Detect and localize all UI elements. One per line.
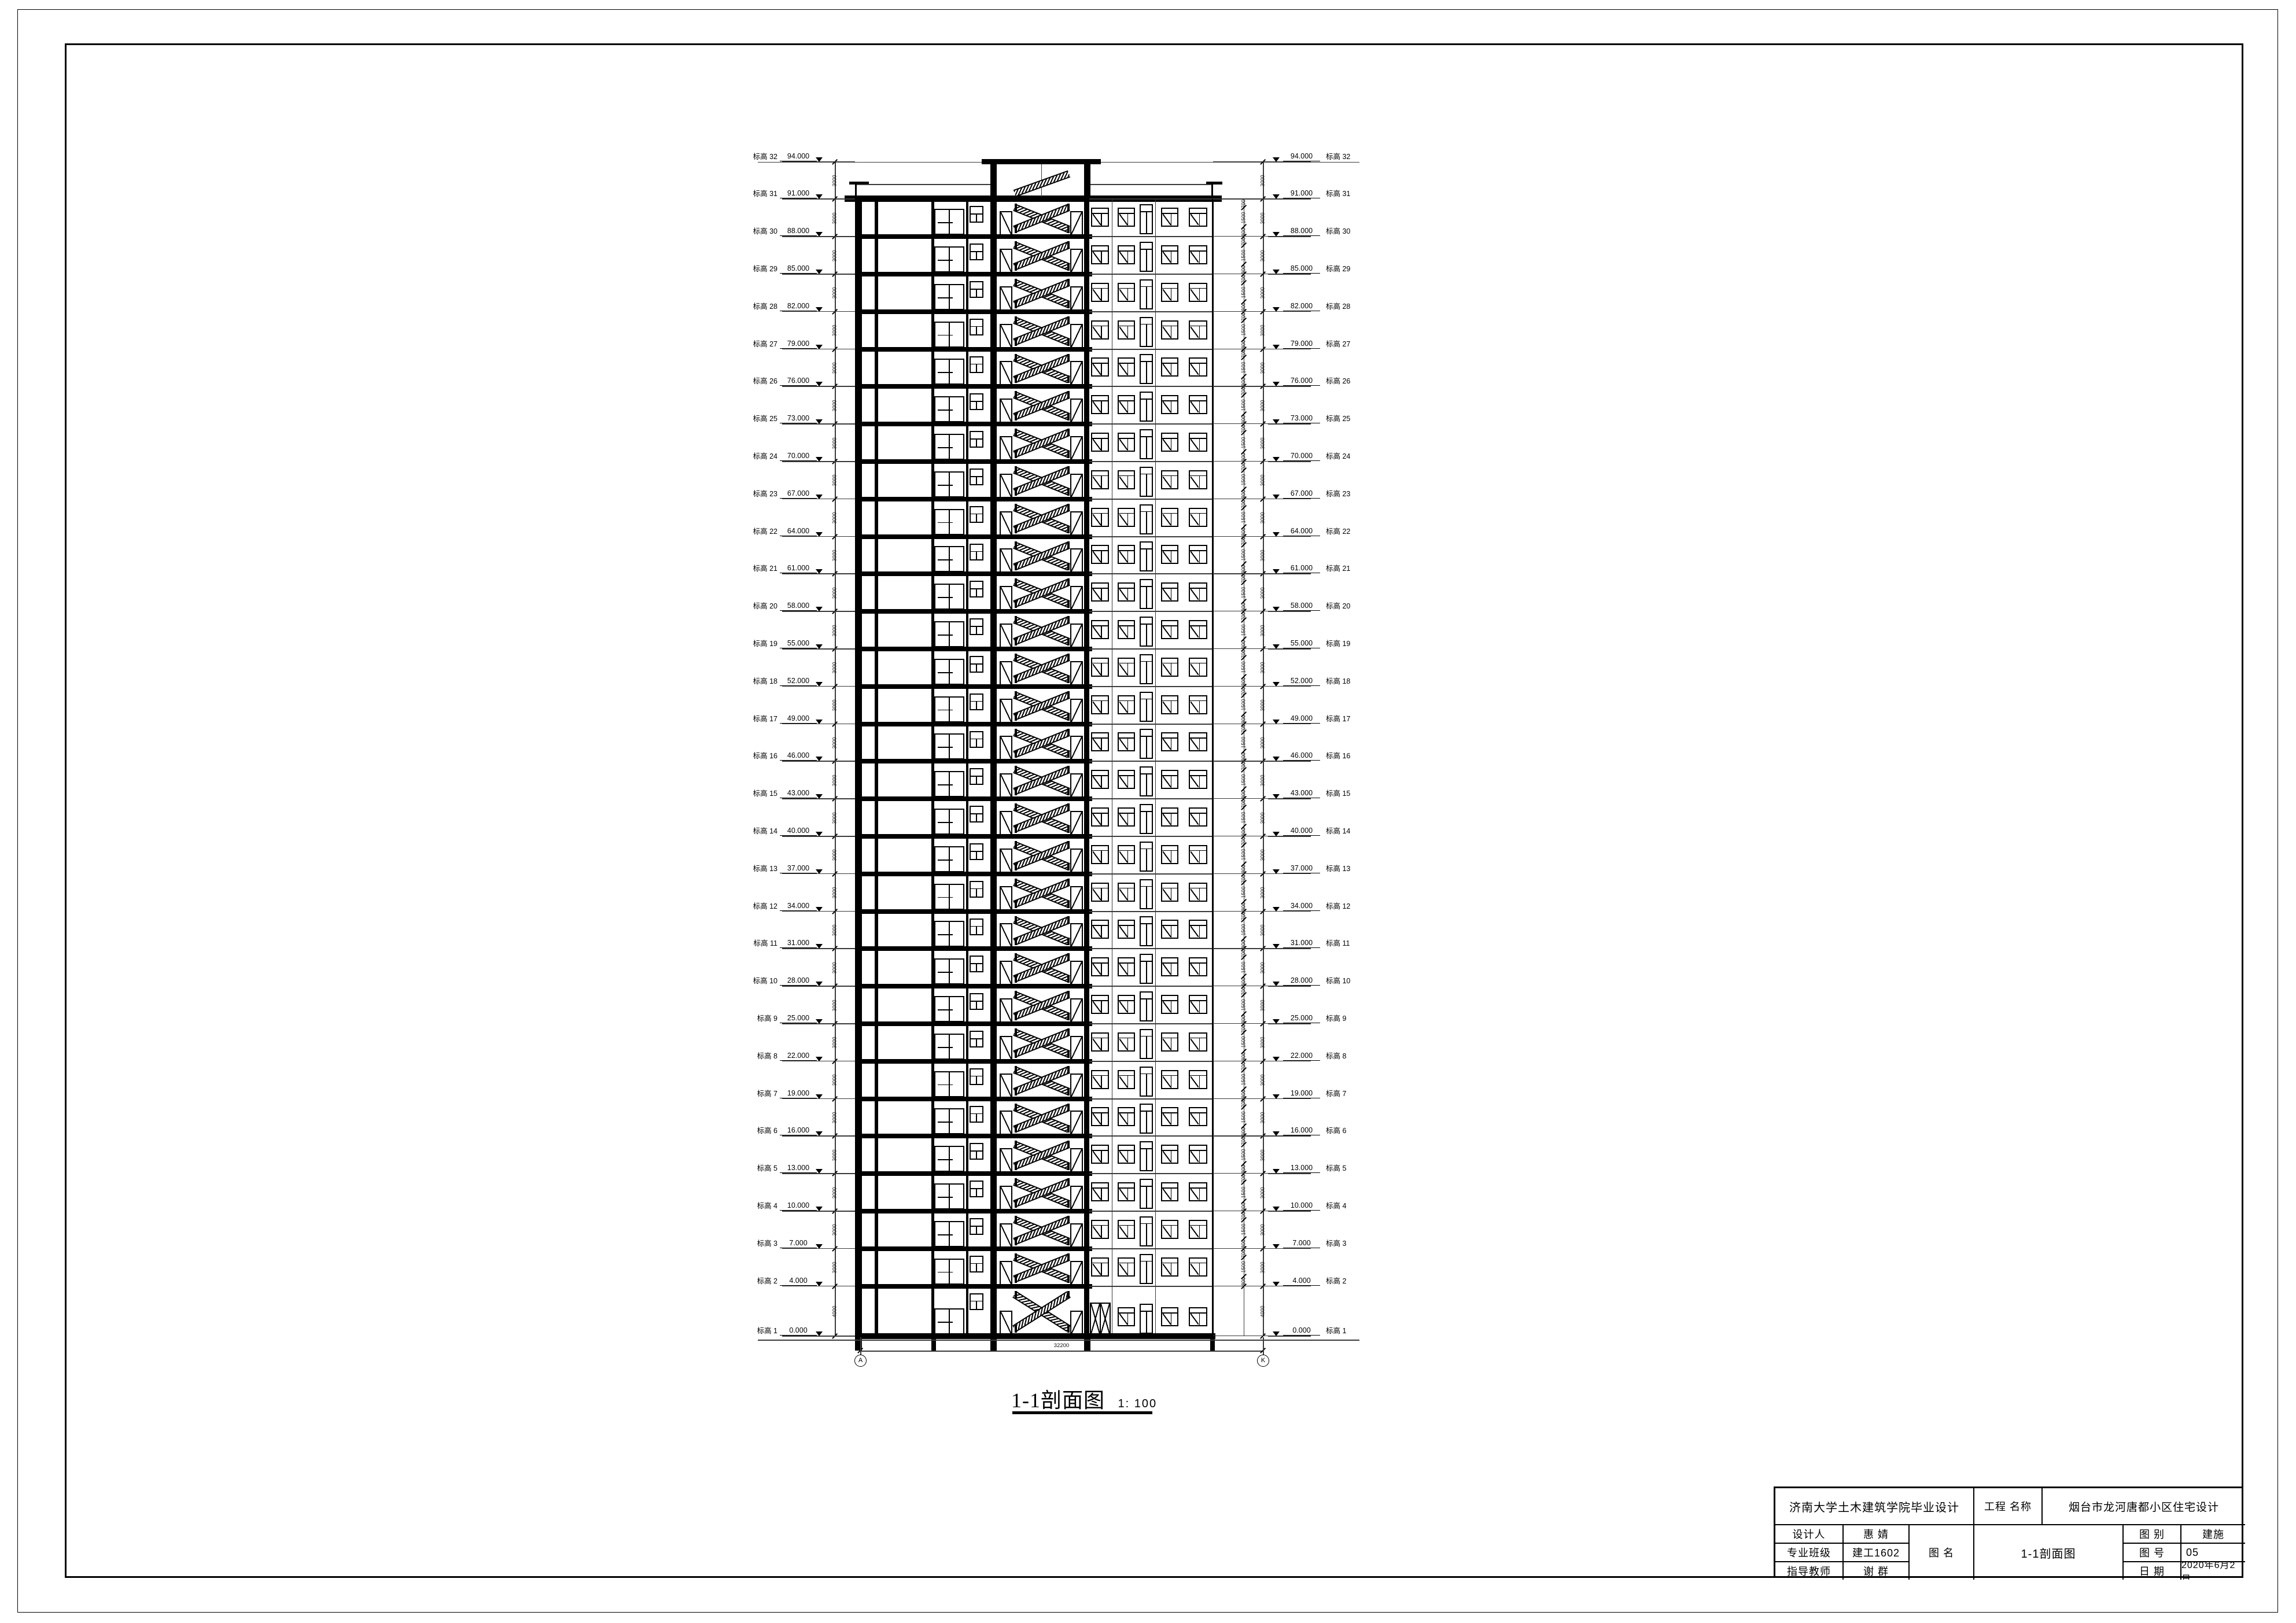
level-value: 88.000: [1283, 227, 1320, 236]
stair-door-leaf: [1071, 1037, 1082, 1059]
level-value: 19.000: [1283, 1089, 1320, 1098]
stair-rail-post: [1015, 563, 1017, 570]
stair-rail-post: [1067, 429, 1070, 436]
arrow-left-icon: [938, 672, 945, 673]
level-value: 49.000: [780, 714, 817, 724]
level-value: 13.000: [1283, 1164, 1320, 1173]
level-value: 67.000: [1283, 489, 1320, 499]
window-sash-diagonal: [1119, 1226, 1127, 1237]
column: [966, 501, 968, 534]
arrow-left-icon: [938, 1272, 945, 1273]
stair-rail-post: [1067, 204, 1070, 211]
arrow-right-icon: [945, 672, 953, 673]
window-sash-diagonal: [1119, 327, 1127, 338]
window-sash-diagonal: [1093, 477, 1101, 488]
level-value: 82.000: [780, 302, 817, 311]
ground-slab: [855, 1333, 1215, 1339]
level-triangle-icon: [1273, 345, 1280, 349]
window-sash-diagonal: [1191, 964, 1199, 975]
window-sash-diagonal: [1163, 401, 1171, 412]
shaft-window-mullion: [976, 1263, 977, 1271]
window-mullion: [1199, 326, 1200, 338]
arrow-left-icon: [938, 222, 945, 223]
window-mullion: [1146, 624, 1147, 645]
arrow-right-icon: [945, 485, 953, 486]
stair-rail-post: [1015, 1088, 1017, 1095]
window-sash-diagonal: [1119, 626, 1127, 637]
floor-slab: [855, 759, 1092, 763]
arrow-right-icon: [945, 635, 953, 636]
window-mullion: [1127, 1075, 1129, 1088]
column: [855, 539, 862, 572]
stair-rail-post: [1015, 1216, 1017, 1223]
foundation-stub: [931, 1339, 936, 1351]
window-mullion: [1171, 1112, 1172, 1125]
stair-rail-post: [1067, 263, 1070, 271]
level-label: 标高 21: [743, 565, 777, 573]
level-ext-line: [1213, 648, 1273, 649]
level-value: 46.000: [1283, 751, 1320, 761]
level-ext-line: [1213, 311, 1273, 312]
level-label: 标高 9: [743, 1015, 777, 1023]
window-sash-diagonal: [1119, 889, 1127, 900]
floor-slab: [855, 459, 1092, 464]
column: [990, 914, 997, 947]
window-mullion: [1127, 250, 1129, 263]
stair-rail-post: [1015, 1253, 1017, 1261]
floor-line: [1089, 686, 1213, 687]
dim-floor-height: 3000: [832, 1217, 838, 1244]
column: [875, 726, 878, 759]
arrow-left-icon: [938, 897, 945, 898]
scale-value: 100: [1134, 1397, 1157, 1410]
dim-overall-line: [860, 1351, 1263, 1352]
window-sash-diagonal: [1163, 364, 1171, 375]
floor-line: [1089, 1061, 1213, 1062]
level-triangle-icon: [1273, 682, 1280, 687]
window-mullion: [1146, 511, 1147, 533]
column: [875, 501, 878, 534]
window-sash-diagonal: [1093, 514, 1101, 525]
floor-line: [1089, 948, 1213, 949]
floor-slab: [855, 497, 1092, 501]
stair-rail-post: [1067, 1200, 1070, 1208]
window-mullion: [1199, 363, 1200, 375]
stair-rail-post: [1067, 504, 1070, 511]
window-mullion: [1199, 588, 1200, 600]
class-value: 建工1602: [1842, 1543, 1908, 1561]
stair-rail-post: [1067, 338, 1070, 346]
window-sash-diagonal: [1191, 1314, 1199, 1325]
window-sash-diagonal: [1093, 252, 1101, 263]
floor-slab: [855, 647, 1092, 651]
level-label: 标高 1: [1326, 1327, 1361, 1336]
shaft-window-mullion: [976, 1113, 977, 1122]
level-label: 标高 18: [1326, 677, 1361, 686]
level-triangle-icon: [1273, 1244, 1280, 1249]
window-mullion: [1101, 850, 1102, 863]
level-triangle-icon: [1273, 569, 1280, 574]
column: [855, 1289, 862, 1334]
level-value: 94.000: [1283, 152, 1320, 161]
column: [875, 988, 878, 1021]
level-value: 31.000: [1283, 939, 1320, 948]
window-sash-diagonal: [1191, 664, 1199, 675]
stair-rail-post: [1067, 226, 1070, 233]
arrow-left-icon: [938, 335, 945, 336]
ground-line: [758, 1340, 1359, 1341]
window-sash-diagonal: [1093, 776, 1101, 787]
window-mullion: [1101, 663, 1102, 676]
arrow-right-icon: [945, 1272, 953, 1273]
stair-rail-post: [1015, 654, 1017, 661]
stair-rail-post: [1015, 938, 1017, 945]
level-ext-line: [1213, 349, 1273, 349]
dim-floor-height: 3000: [1260, 1255, 1266, 1281]
floor-slab: [855, 946, 1092, 951]
stair-door-leaf: [1071, 1262, 1082, 1284]
stair-rail-post: [1067, 750, 1070, 758]
scale-prefix: 1:: [1118, 1397, 1130, 1410]
window-sash-diagonal: [1119, 252, 1127, 263]
window-sash-diagonal: [1119, 401, 1127, 412]
shaft-window-mullion: [976, 926, 977, 934]
level-label: 标高 29: [1326, 265, 1361, 274]
floor-line: [1089, 1173, 1213, 1174]
column: [855, 726, 862, 759]
floor-slab: [855, 422, 1092, 426]
column: [855, 576, 862, 609]
window-sash-diagonal: [1163, 1076, 1171, 1087]
window-mullion: [1171, 1187, 1172, 1200]
arrow-left-icon: [938, 710, 945, 711]
window-sash-diagonal: [1119, 1113, 1127, 1124]
window-mullion: [1101, 363, 1102, 375]
section-title-text: 1-1剖面图: [1011, 1389, 1105, 1412]
dim-floor-height: 3000: [1260, 692, 1266, 719]
column: [990, 1251, 997, 1284]
level-triangle-icon: [1273, 832, 1280, 836]
advisor-value: 谢 群: [1842, 1561, 1908, 1580]
level-triangle-icon: [1273, 869, 1280, 874]
dim-floor-height: 3000: [832, 505, 838, 532]
section-title-underline: [1012, 1411, 1152, 1414]
level-value: 7.000: [780, 1239, 817, 1248]
stair-rail-post: [1067, 901, 1070, 908]
stair-door-leaf: [1001, 287, 1011, 309]
column: [1084, 839, 1089, 872]
shaft-window-mullion: [976, 888, 977, 897]
column: [855, 1064, 862, 1097]
window-sash-diagonal: [1191, 439, 1199, 450]
window-mullion: [1146, 1074, 1147, 1095]
column: [875, 539, 878, 572]
stair-rail-post: [1067, 1125, 1070, 1133]
window-sash-diagonal: [1119, 702, 1127, 713]
floor-line: [1089, 1023, 1213, 1024]
dim-floor-height: 3000: [832, 1179, 838, 1206]
window-mullion: [1146, 586, 1147, 608]
arrow-left-icon: [938, 972, 945, 973]
dim-floor-height: 3000: [1260, 954, 1266, 981]
floor-line: [1089, 461, 1213, 462]
window-sash-diagonal: [1119, 551, 1127, 562]
level-triangle-icon: [1273, 1094, 1280, 1099]
stair-rail-post: [1015, 600, 1017, 608]
level-value: 34.000: [780, 902, 817, 911]
window-mullion: [1127, 326, 1129, 338]
arrow-right-icon: [945, 1085, 953, 1086]
column: [855, 951, 862, 984]
window-mullion: [1101, 475, 1102, 488]
column: [855, 201, 862, 234]
level-ext-line: [1213, 386, 1273, 386]
window-mullion: [1101, 775, 1102, 788]
window-sash-diagonal: [1093, 814, 1101, 825]
window-mullion: [1199, 1187, 1200, 1200]
stair-rail-post: [1015, 1066, 1017, 1074]
bulkhead-wall: [1084, 164, 1090, 200]
window-mullion: [1101, 588, 1102, 600]
dim-floor-height: 3000: [1260, 543, 1266, 569]
arrow-left-icon: [938, 1047, 945, 1048]
level-label: 标高 26: [1326, 377, 1361, 386]
floor-slab: [855, 234, 1092, 239]
stair-door-leaf: [1001, 1149, 1011, 1171]
stair-rail-post: [1015, 825, 1017, 833]
window-mullion: [1127, 888, 1129, 901]
stair-door-leaf: [1001, 1037, 1011, 1059]
floor-line: [1089, 386, 1213, 387]
dim-floor-height: 3000: [832, 1030, 838, 1056]
shaft-window-mullion: [976, 1038, 977, 1046]
stair-door-leaf: [1001, 587, 1011, 609]
stair-door-leaf: [1071, 437, 1082, 459]
column: [990, 539, 997, 572]
stair-rail-post: [1067, 1238, 1070, 1245]
window-sash-diagonal: [1163, 889, 1171, 900]
window-mullion: [1171, 775, 1172, 788]
level-ext-line: [1213, 1173, 1273, 1174]
column: [1084, 1138, 1089, 1171]
floor-line: [1089, 873, 1213, 875]
level-label: 标高 3: [1326, 1240, 1361, 1248]
level-value: 43.000: [1283, 789, 1320, 798]
column: [966, 1289, 968, 1334]
column: [855, 801, 862, 834]
column: [855, 1176, 862, 1209]
floor-slab: [855, 534, 1092, 539]
arrow-right-icon: [945, 934, 953, 935]
level-value: 10.000: [780, 1201, 817, 1211]
arrow-left-icon: [938, 447, 945, 448]
stair-rail-post: [1015, 1163, 1017, 1170]
stair-rail-post: [1067, 975, 1070, 983]
stair-door-leaf: [1071, 737, 1082, 759]
window-sash-diagonal: [1119, 1189, 1127, 1200]
stair-rail-post: [1067, 301, 1070, 308]
column: [855, 501, 862, 534]
window-mullion: [1146, 249, 1147, 271]
stair-door-leaf: [1001, 887, 1011, 909]
dim-floor-height: 3000: [1260, 392, 1266, 419]
level-value: 73.000: [1283, 414, 1320, 423]
shaft-window-mullion: [976, 626, 977, 634]
level-value: 64.000: [1283, 527, 1320, 536]
window-mullion: [1146, 1261, 1147, 1283]
level-label: 标高 14: [743, 827, 777, 836]
window-sash-diagonal: [1163, 327, 1171, 338]
window-sash-diagonal: [1093, 401, 1101, 412]
foundation-stub: [1084, 1339, 1090, 1351]
column: [875, 352, 878, 385]
stair-door-leaf: [1071, 700, 1082, 722]
stair-rail-post: [1015, 841, 1017, 849]
column: [990, 1289, 997, 1334]
floor-line: [1089, 798, 1213, 799]
column: [1084, 1101, 1089, 1134]
stair-rail-post: [1015, 1291, 1017, 1299]
column: [875, 763, 878, 796]
level-value: 58.000: [780, 602, 817, 611]
window-sash-diagonal: [1191, 1001, 1199, 1012]
stair-rail-post: [1067, 1141, 1070, 1148]
level-ext-line: [1213, 1098, 1273, 1099]
window-sash-diagonal: [1191, 252, 1199, 263]
column: [990, 951, 997, 984]
parapet-line: [857, 184, 990, 185]
floor-slab: [855, 1021, 1092, 1026]
floor-line: [1089, 761, 1213, 762]
window-sash-diagonal: [1093, 214, 1101, 225]
level-label: 标高 27: [743, 340, 777, 349]
arrow-left-icon: [938, 1009, 945, 1010]
level-label: 标高 15: [1326, 790, 1361, 798]
floor-slab: [855, 347, 1092, 352]
level-triangle-icon: [1273, 1019, 1280, 1024]
stair-rail-post: [1015, 241, 1017, 249]
level-triangle-icon: [1273, 1057, 1280, 1061]
window-mullion: [1101, 700, 1102, 713]
level-value: 16.000: [780, 1126, 817, 1135]
dim-floor-height: 3000: [1260, 1142, 1266, 1168]
level-triangle-icon: [1273, 1131, 1280, 1136]
window-sash-diagonal: [1191, 364, 1199, 375]
entrance-door-glass: [1091, 1304, 1100, 1334]
column: [966, 1176, 968, 1209]
level-ext-line: [1213, 873, 1273, 874]
stair-rail-post: [1015, 279, 1017, 286]
window-mullion: [1171, 700, 1172, 713]
window-mullion: [1101, 1075, 1102, 1088]
dim-floor-height: 3000: [1260, 280, 1266, 307]
stair-rail-post: [1067, 488, 1070, 496]
column: [990, 839, 997, 872]
window-sash-diagonal: [1163, 1189, 1171, 1200]
level-label: 标高 23: [1326, 490, 1361, 499]
window-sash-diagonal: [1191, 1076, 1199, 1087]
window-mullion: [1199, 288, 1200, 301]
window-sash-diagonal: [1093, 551, 1101, 562]
level-label: 标高 32: [743, 153, 777, 161]
level-value: 58.000: [1283, 602, 1320, 611]
stair-rail-post: [1067, 1253, 1070, 1261]
window-mullion: [1171, 213, 1172, 226]
facade-right-edge: [1212, 199, 1214, 1336]
column: [875, 651, 878, 684]
stair-rail-post: [1067, 788, 1070, 795]
arrow-left-icon: [938, 372, 945, 373]
column: [990, 314, 997, 347]
level-triangle-icon: [1273, 607, 1280, 611]
window-sash-diagonal: [1119, 214, 1127, 225]
level-ext-line: [1213, 274, 1273, 274]
stair-rail-post: [1015, 1050, 1017, 1058]
window-mullion: [1101, 288, 1102, 301]
column: [855, 239, 862, 272]
shaft-window-mullion: [976, 1001, 977, 1009]
window-mullion: [1199, 475, 1200, 488]
stair-rail-post: [1067, 938, 1070, 945]
stair-rail-post: [1067, 766, 1070, 773]
window-sash-diagonal: [1093, 1226, 1101, 1237]
shaft-window-mullion: [976, 438, 977, 447]
arrow-right-icon: [945, 1009, 953, 1010]
floor-line: [1089, 274, 1213, 275]
stair-door-leaf: [1001, 325, 1011, 347]
column: [1084, 689, 1089, 722]
window-sash-diagonal: [1191, 514, 1199, 525]
column: [855, 1213, 862, 1246]
titleblock-project-name: 烟台市龙河唐都小区住宅设计: [2041, 1488, 2245, 1524]
level-value: 85.000: [780, 264, 817, 274]
shaft-window-mullion: [976, 251, 977, 259]
shaft-window-mullion: [976, 364, 977, 372]
stair-rail-post: [1015, 1238, 1017, 1245]
column: [875, 876, 878, 909]
arrow-right-icon: [945, 410, 953, 411]
level-value: 85.000: [1283, 264, 1320, 274]
arrow-left-icon: [938, 485, 945, 486]
stair-rail-post: [1067, 451, 1070, 458]
arrow-right-icon: [945, 710, 953, 711]
drawing-name-value: 1-1剖面图: [1973, 1524, 2122, 1580]
window-mullion: [1101, 1038, 1102, 1050]
column: [1084, 726, 1089, 759]
window-sash-diagonal: [1093, 364, 1101, 375]
floor-slab: [855, 834, 1092, 839]
column: [875, 276, 878, 309]
floor-line: [1089, 573, 1213, 574]
column: [855, 314, 862, 347]
window-sash-diagonal: [1191, 776, 1199, 787]
window-mullion: [1199, 775, 1200, 788]
dim-floor-height: 3000: [1260, 992, 1266, 1019]
window-mullion: [1127, 1263, 1129, 1275]
dim-floor-height: 3000: [832, 1067, 838, 1094]
window-mullion: [1127, 737, 1129, 750]
stair-door-leaf: [1071, 1149, 1082, 1171]
dim-floor-height: 3000: [832, 992, 838, 1019]
window-mullion: [1171, 925, 1172, 938]
stair-rail-post: [1067, 413, 1070, 420]
stair-rail-post: [1015, 1275, 1017, 1283]
arrow-left-icon: [938, 1234, 945, 1235]
dim-floor-height: 3000: [832, 617, 838, 644]
shaft-window-mullion: [976, 963, 977, 971]
window-sash-diagonal: [1191, 401, 1199, 412]
column: [1084, 464, 1089, 497]
